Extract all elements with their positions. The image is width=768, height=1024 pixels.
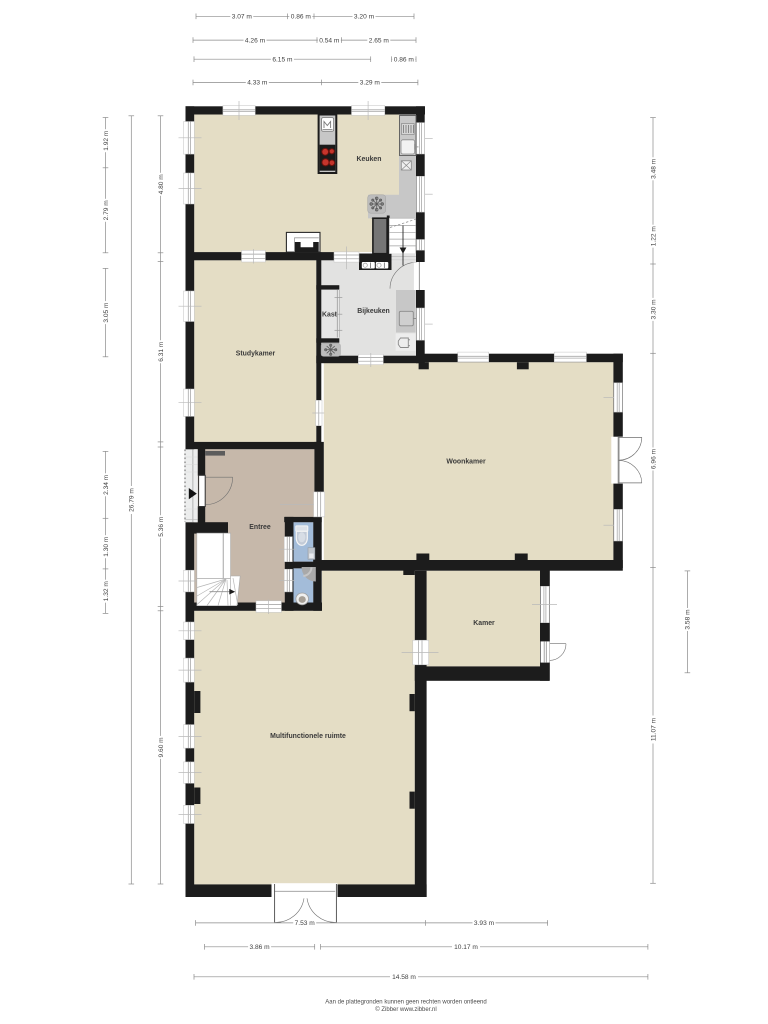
svg-text:Multifunctionele ruimte: Multifunctionele ruimte xyxy=(270,733,346,740)
svg-text:0.86 m: 0.86 m xyxy=(291,14,312,21)
svg-text:3.58 m: 3.58 m xyxy=(685,609,692,630)
svg-text:3.20 m: 3.20 m xyxy=(354,14,375,21)
svg-text:6.15 m: 6.15 m xyxy=(272,57,293,64)
svg-text:7.53 m: 7.53 m xyxy=(295,920,316,927)
svg-text:0.86 m: 0.86 m xyxy=(394,57,415,64)
svg-text:2.34 m: 2.34 m xyxy=(103,474,110,495)
svg-text:Woonkamer: Woonkamer xyxy=(446,459,486,466)
svg-text:Bijkeuken: Bijkeuken xyxy=(357,308,390,315)
svg-text:1.30 m: 1.30 m xyxy=(103,536,110,557)
svg-text:3.93 m: 3.93 m xyxy=(474,920,495,927)
svg-text:Kamer: Kamer xyxy=(473,620,495,627)
svg-text:Kast: Kast xyxy=(322,311,338,318)
svg-text:Studykamer: Studykamer xyxy=(236,351,276,358)
svg-text:3.86 m: 3.86 m xyxy=(250,944,271,951)
svg-text:3.07 m: 3.07 m xyxy=(232,14,253,21)
svg-text:1.92 m: 1.92 m xyxy=(103,130,110,151)
svg-text:© Zibber www.zibber.nl: © Zibber www.zibber.nl xyxy=(375,1006,436,1013)
svg-text:2.79 m: 2.79 m xyxy=(103,200,110,221)
svg-text:5.36 m: 5.36 m xyxy=(158,516,165,537)
svg-text:6.31 m: 6.31 m xyxy=(158,341,165,362)
svg-text:0.54 m: 0.54 m xyxy=(319,37,340,44)
svg-text:1.32 m: 1.32 m xyxy=(103,581,110,602)
svg-text:3.29 m: 3.29 m xyxy=(360,80,381,87)
svg-text:4.80 m: 4.80 m xyxy=(158,174,165,195)
svg-text:4.26 m: 4.26 m xyxy=(245,37,266,44)
svg-text:3.30 m: 3.30 m xyxy=(650,299,657,320)
svg-text:3.05 m: 3.05 m xyxy=(103,302,110,323)
svg-text:3.48 m: 3.48 m xyxy=(650,158,657,179)
svg-text:26.79 m: 26.79 m xyxy=(129,488,136,512)
svg-text:6.96 m: 6.96 m xyxy=(650,448,657,469)
svg-text:14.58 m: 14.58 m xyxy=(392,974,416,981)
svg-text:10.17 m: 10.17 m xyxy=(454,944,478,951)
svg-text:9.60 m: 9.60 m xyxy=(158,737,165,758)
svg-text:1.22 m: 1.22 m xyxy=(650,226,657,247)
svg-text:Keuken: Keuken xyxy=(357,156,382,163)
svg-text:Entree: Entree xyxy=(249,524,271,531)
svg-text:4.33 m: 4.33 m xyxy=(247,80,268,87)
svg-text:2.65 m: 2.65 m xyxy=(369,37,390,44)
svg-text:Aan de plattegronden kunnen ge: Aan de plattegronden kunnen geen rechten… xyxy=(325,1000,486,1006)
svg-text:11.07 m: 11.07 m xyxy=(650,717,657,741)
